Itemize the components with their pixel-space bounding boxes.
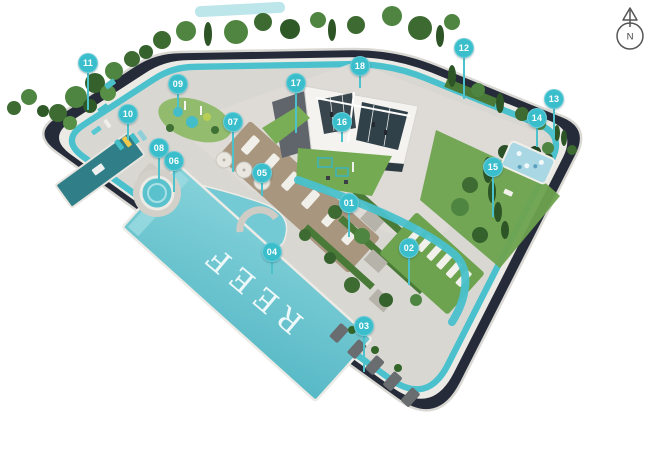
marker-03-badge: 03 (354, 316, 374, 336)
marker-18[interactable]: 18 (350, 56, 370, 76)
marker-17[interactable]: 17 (286, 73, 306, 93)
marker-10[interactable]: 10 (118, 104, 138, 124)
marker-14[interactable]: 14 (527, 108, 547, 128)
marker-17-badge: 17 (286, 73, 306, 93)
marker-01-badge: 01 (339, 193, 359, 213)
marker-02-badge: 02 (399, 238, 419, 258)
marker-layer: 010203040506070809101112131415161718 (0, 0, 660, 457)
marker-08[interactable]: 08 (149, 138, 169, 158)
marker-16-badge: 16 (332, 112, 352, 132)
marker-15[interactable]: 15 (483, 157, 503, 177)
marker-10-badge: 10 (118, 104, 138, 124)
marker-09-badge: 09 (168, 74, 188, 94)
marker-14-badge: 14 (527, 108, 547, 128)
marker-08-badge: 08 (149, 138, 169, 158)
marker-01[interactable]: 01 (339, 193, 359, 213)
marker-11-badge: 11 (78, 53, 98, 73)
marker-12[interactable]: 12 (454, 38, 474, 58)
marker-05[interactable]: 05 (252, 163, 272, 183)
marker-04[interactable]: 04 (262, 242, 282, 262)
marker-15-badge: 15 (483, 157, 503, 177)
marker-07-badge: 07 (223, 112, 243, 132)
marker-13-badge: 13 (544, 89, 564, 109)
site-plan-canvas: REEF (0, 0, 660, 457)
marker-07[interactable]: 07 (223, 112, 243, 132)
marker-09[interactable]: 09 (168, 74, 188, 94)
marker-03[interactable]: 03 (354, 316, 374, 336)
marker-12-badge: 12 (454, 38, 474, 58)
marker-02[interactable]: 02 (399, 238, 419, 258)
marker-18-badge: 18 (350, 56, 370, 76)
marker-11[interactable]: 11 (78, 53, 98, 73)
marker-04-badge: 04 (262, 242, 282, 262)
marker-16[interactable]: 16 (332, 112, 352, 132)
marker-05-badge: 05 (252, 163, 272, 183)
marker-13[interactable]: 13 (544, 89, 564, 109)
